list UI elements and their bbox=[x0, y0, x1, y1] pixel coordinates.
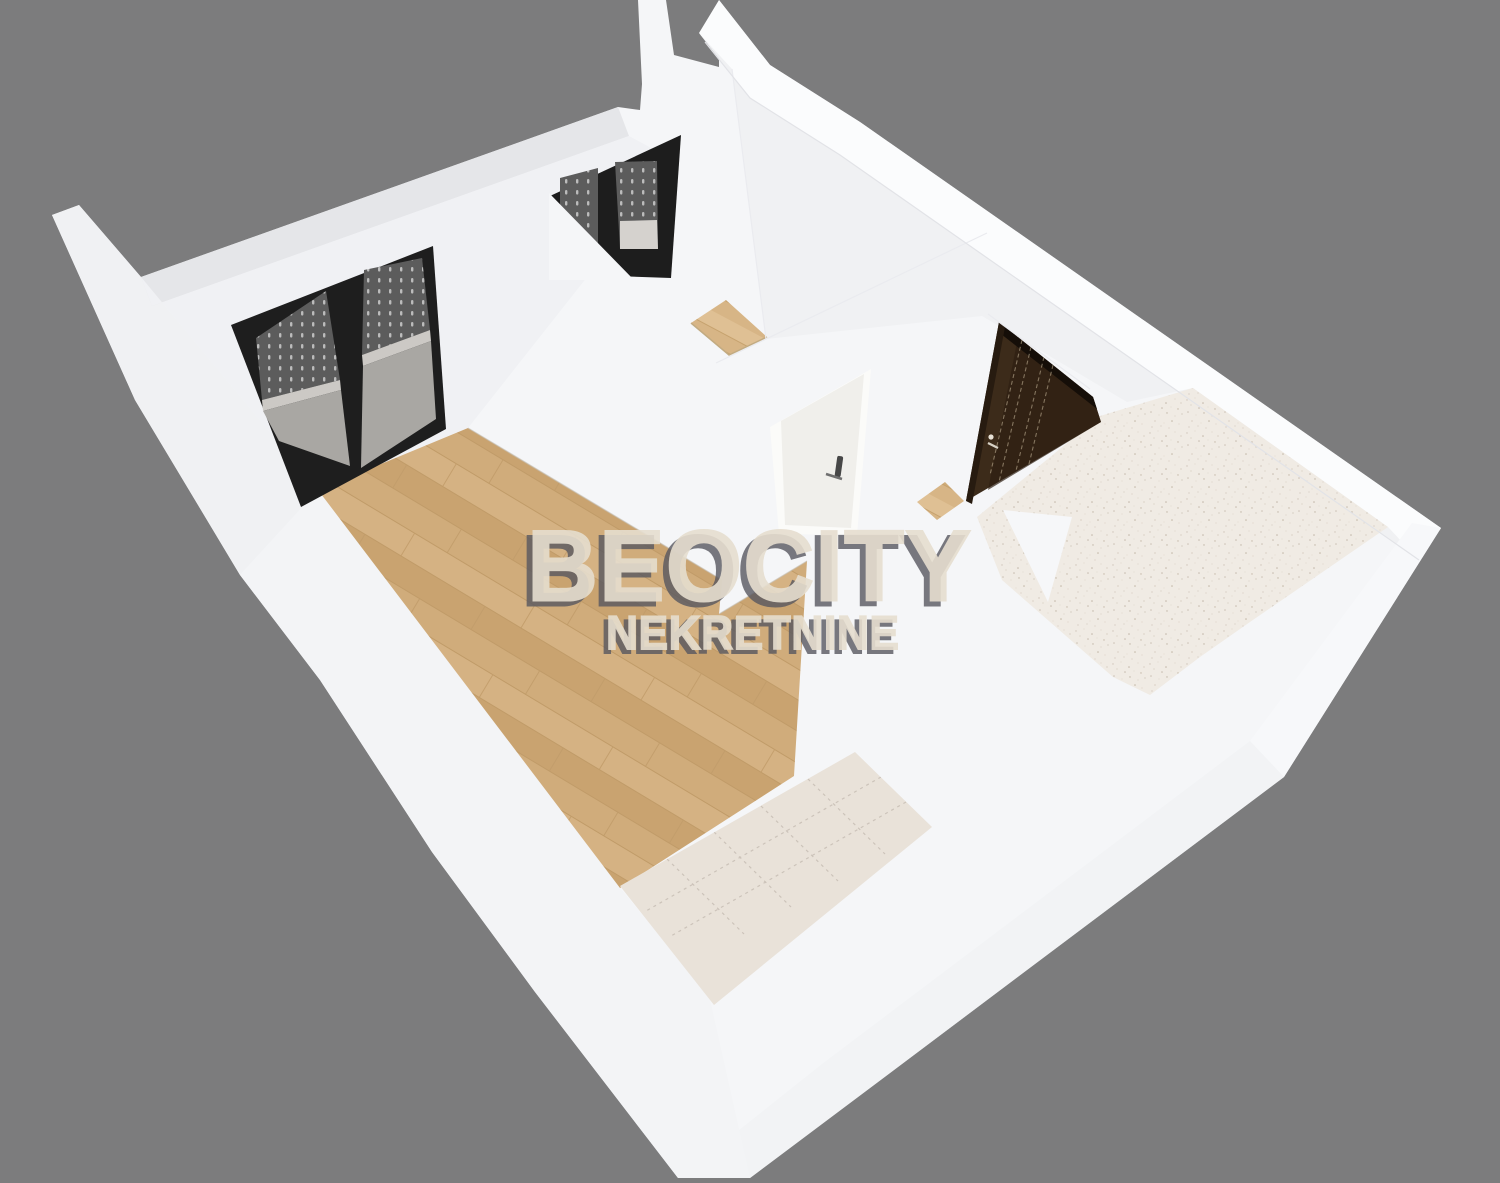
svg-text:BEOCITY: BEOCITY bbox=[528, 510, 973, 621]
svg-text:NEKRETNINE: NEKRETNINE bbox=[606, 607, 899, 660]
